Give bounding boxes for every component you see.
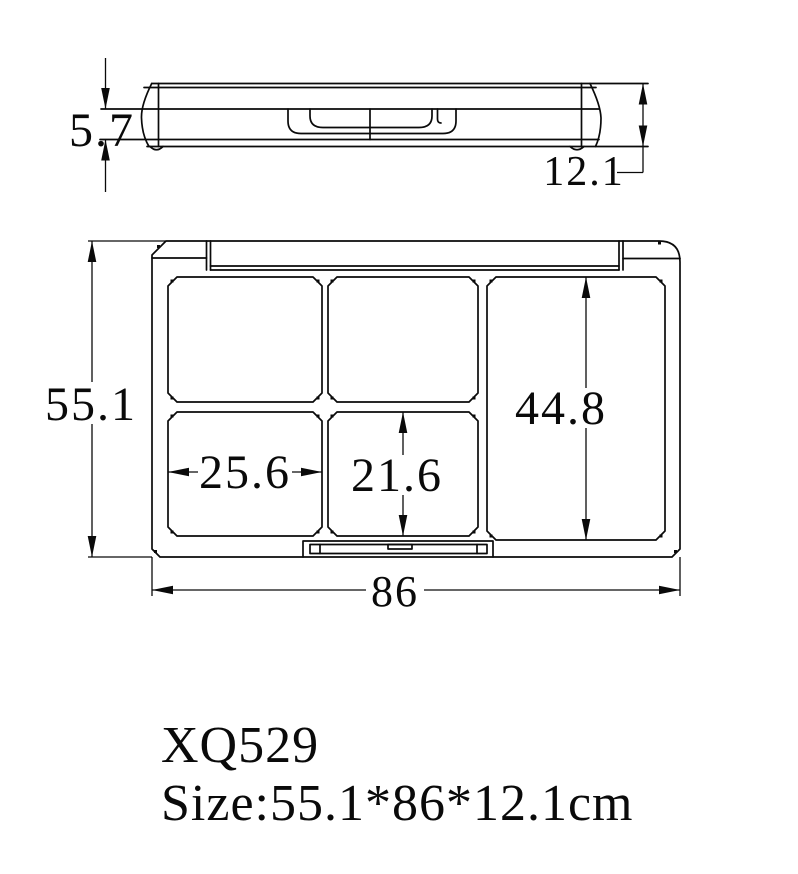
corner-dot: [331, 280, 334, 283]
dimension-right-pan-height: 44.8: [515, 277, 607, 540]
dim-44-8-arrow-up-icon: [582, 277, 591, 298]
dim-21-6-arrow-up-icon: [399, 412, 408, 433]
dim-21-6-arrow-down-icon: [399, 515, 408, 536]
size-caption-label: Size:55.1*86*12.1cm: [161, 775, 634, 832]
corner-dot: [171, 415, 174, 418]
dim-86-arrow-left-icon: [152, 586, 173, 595]
dim-86-text: 86: [371, 567, 419, 616]
case-corner-dot: [658, 242, 661, 245]
side-view: [100, 84, 648, 150]
dim-12-1-arrow-down-icon: [639, 126, 648, 147]
cad-drawing: 5.7 12.1: [0, 0, 798, 874]
case-corner-dot: [674, 550, 677, 553]
title-block: XQ529 Size:55.1*86*12.1cm: [161, 717, 634, 832]
corner-dot: [331, 531, 334, 534]
dim-86-arrow-right-icon: [659, 586, 680, 595]
technical-drawing-page: 5.7 12.1: [0, 0, 798, 874]
corner-dot: [473, 415, 476, 418]
side-right-edge: [590, 84, 601, 147]
side-latch-groove-inner: [310, 109, 432, 128]
dim-5-7-text: 5.7: [69, 104, 135, 157]
corner-dot: [660, 535, 663, 538]
pan-top-left: [168, 277, 322, 402]
corner-dot: [331, 397, 334, 400]
case-corner-dot: [157, 245, 160, 248]
corner-dot: [473, 397, 476, 400]
dimension-pan-width: 25.6: [168, 446, 322, 499]
corner-dot: [473, 280, 476, 283]
dim-25-6-text: 25.6: [199, 446, 291, 499]
dim-44-8-arrow-down-icon: [582, 519, 591, 540]
corner-dot: [660, 280, 663, 283]
dimension-overall-height: 55.1: [45, 241, 166, 557]
corner-dot: [490, 535, 493, 538]
front-latch: [303, 541, 493, 557]
dim-55-1-text: 55.1: [45, 378, 137, 431]
side-latch-tick: [438, 109, 442, 123]
dim-25-6-arrow-left-icon: [168, 468, 189, 477]
pan-top-middle: [328, 277, 478, 402]
corner-dot: [473, 531, 476, 534]
corner-dot: [317, 397, 320, 400]
side-left-hinge-edge: [141, 84, 151, 147]
dim-55-1-arrow-down-icon: [88, 536, 97, 557]
product-code-label: XQ529: [161, 717, 319, 774]
corner-dot: [317, 531, 320, 534]
corner-dot: [171, 280, 174, 283]
dimension-overall-width: 86: [152, 557, 680, 616]
dim-12-1-arrow-up-icon: [639, 84, 648, 105]
dim-12-1-text: 12.1: [543, 149, 625, 195]
corner-dot: [171, 397, 174, 400]
latch-thumb-tab: [388, 545, 412, 550]
dim-55-1-arrow-up-icon: [88, 241, 97, 262]
dimension-lid-height: 5.7: [69, 58, 135, 192]
dim-25-6-arrow-right-icon: [301, 468, 322, 477]
dimension-pan-height: 21.6: [351, 412, 443, 536]
corner-dot: [490, 280, 493, 283]
case-corner-dot: [154, 550, 157, 553]
dim-21-6-text: 21.6: [351, 449, 443, 502]
corner-dot: [331, 415, 334, 418]
corner-dot: [171, 531, 174, 534]
corner-dot: [317, 280, 320, 283]
dim-44-8-text: 44.8: [515, 382, 607, 435]
corner-dot: [317, 415, 320, 418]
